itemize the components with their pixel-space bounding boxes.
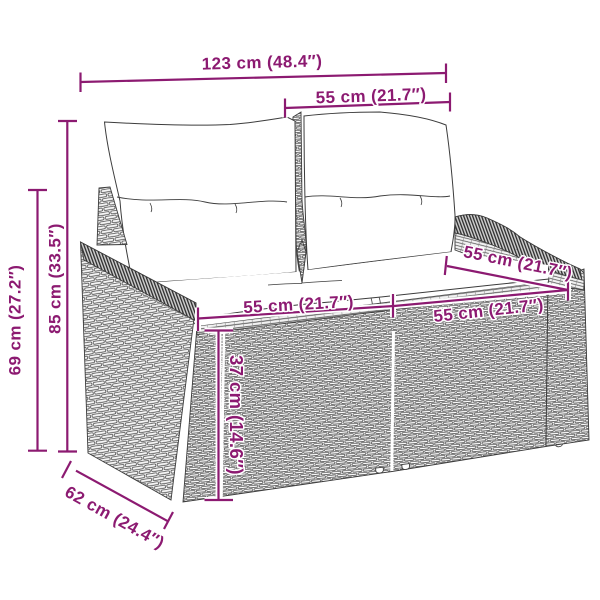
svg-text:55 cm (21.7″): 55 cm (21.7″) [315, 85, 426, 108]
svg-text:69 cm (27.2″): 69 cm (27.2″) [6, 265, 25, 376]
svg-text:37 cm (14.6″): 37 cm (14.6″) [226, 355, 247, 475]
svg-text:85 cm (33.5″): 85 cm (33.5″) [46, 223, 65, 334]
svg-text:123 cm (48.4″): 123 cm (48.4″) [202, 51, 323, 73]
